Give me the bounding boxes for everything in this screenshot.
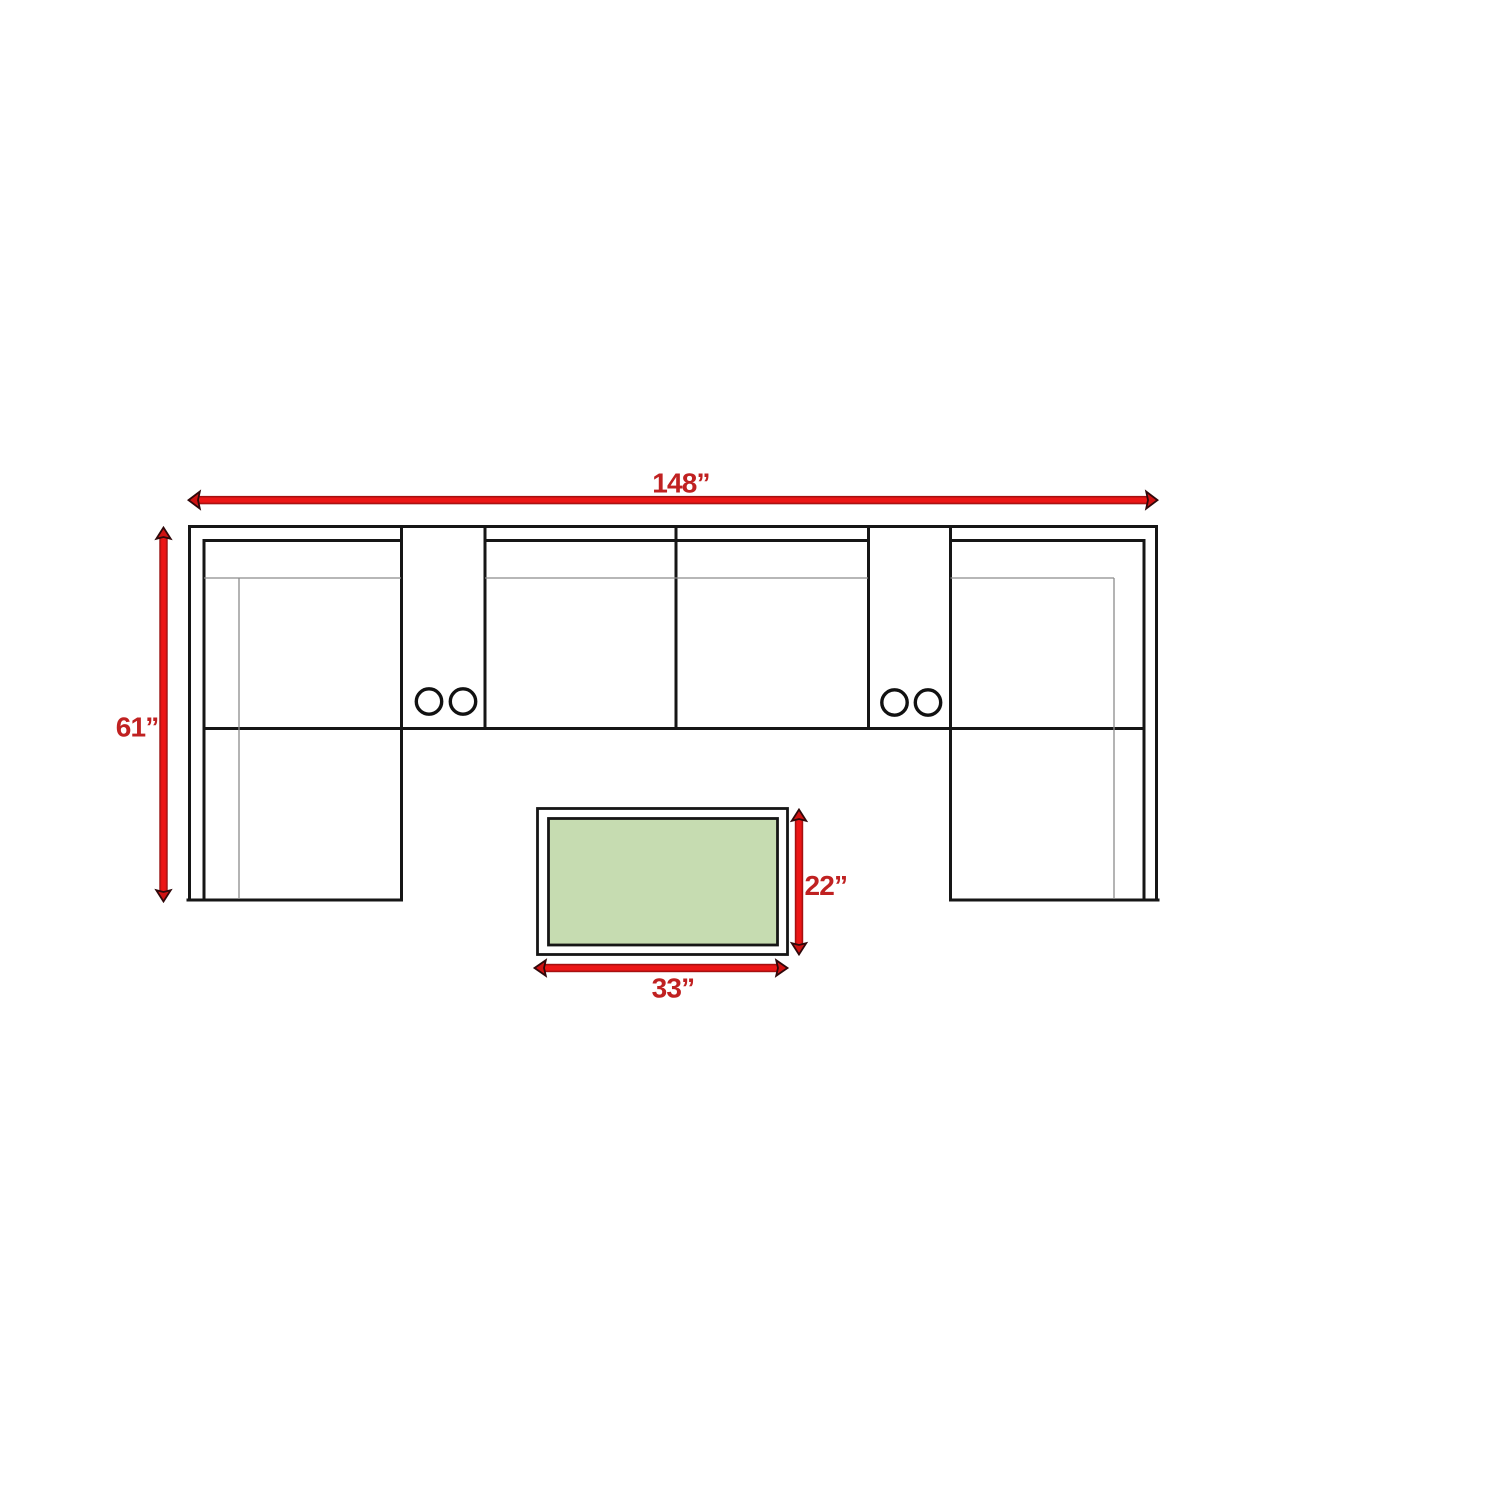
svg-text:61”: 61” <box>116 712 159 743</box>
svg-text:33”: 33” <box>652 973 695 1004</box>
svg-text:148”: 148” <box>652 468 710 499</box>
svg-text:22”: 22” <box>805 870 848 901</box>
